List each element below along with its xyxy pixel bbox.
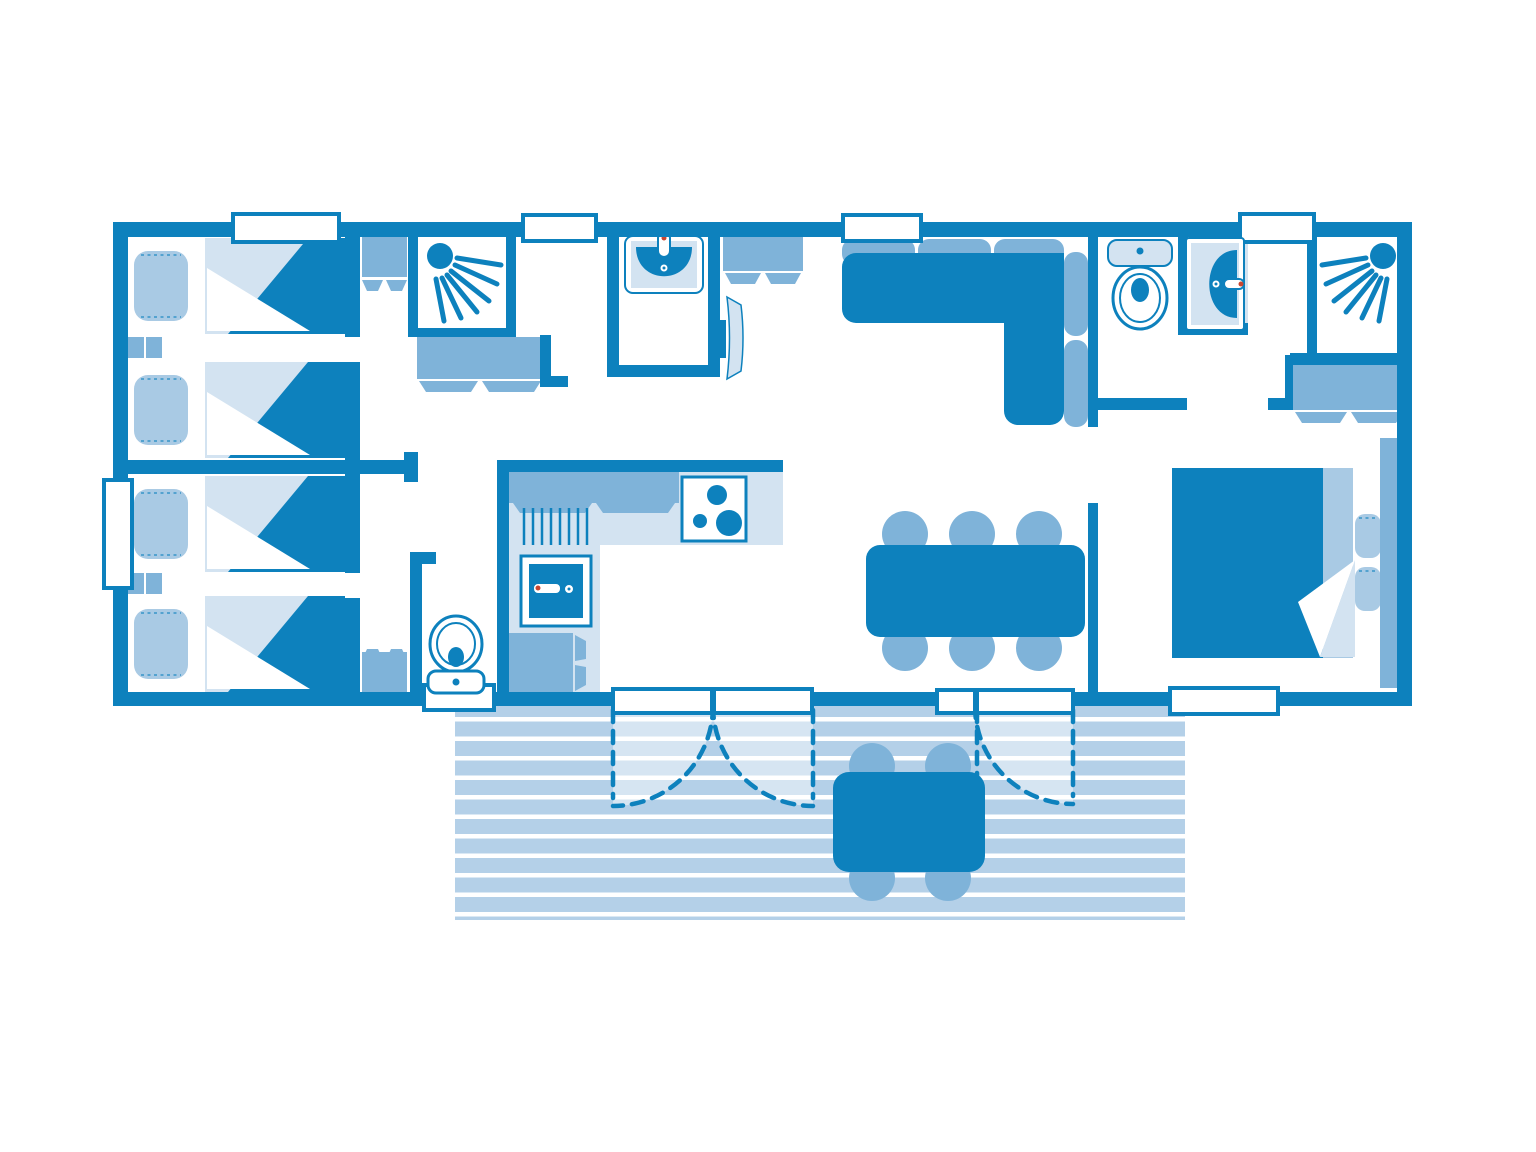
dining-table-icon [866,545,1085,637]
washbasin-icon [625,232,703,293]
washbasin-icon [1186,238,1244,330]
floor-plan-drawing [0,0,1536,1152]
toilet-icon [428,616,484,693]
terrace-deck [455,706,1185,920]
wardrobe-icon [362,649,407,692]
toilet-icon [1108,240,1172,329]
kitchen-sink-icon [521,556,591,626]
outdoor-table-icon [833,772,985,872]
single-bed-icon [128,596,345,692]
floor-plan-canvas [0,0,1536,1152]
single-bed-icon [128,476,345,572]
single-bed-icon [128,238,345,334]
double-bed-icon [1172,438,1406,688]
building [104,214,1412,714]
single-bed-icon [128,362,345,458]
nightstand-icon [128,337,162,358]
hob-burners-icon [682,477,746,541]
